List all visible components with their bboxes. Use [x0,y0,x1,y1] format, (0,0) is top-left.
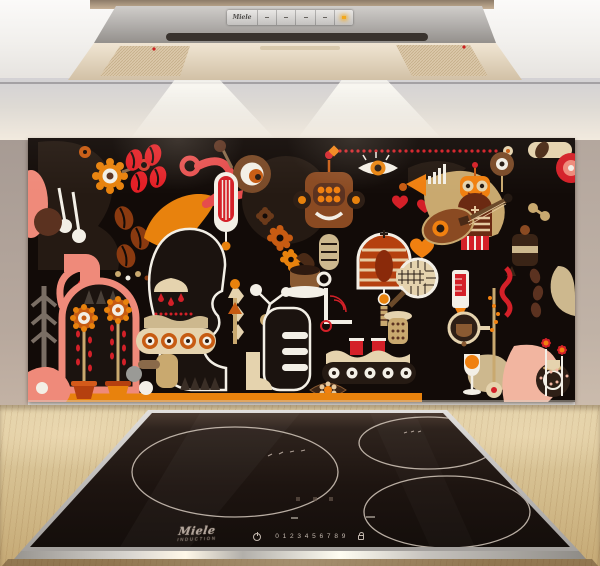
power-level-6[interactable]: 6 [319,533,323,541]
cooktop-glass [30,413,570,547]
wall-right-of-splashback [575,140,600,412]
hood-brand-logo: Miele [227,10,257,25]
power-level-4[interactable]: 4 [305,533,309,541]
hood-power-button[interactable] [257,10,276,25]
upper-wall [0,78,600,142]
power-level-2[interactable]: 2 [290,533,294,541]
hood-fan-speed-2-button[interactable] [295,10,314,25]
power-level-9[interactable]: 9 [342,533,346,541]
hood-fan-speed-3-button[interactable] [315,10,334,25]
fan-3-icon [323,17,327,19]
wall-groove [0,82,600,84]
power-icon [265,17,269,19]
glass-splashback [28,138,575,402]
power-level-3[interactable]: 3 [297,533,301,541]
fan-1-icon [284,17,288,19]
fan-2-icon [304,17,308,19]
power-level-slider[interactable]: 0 1 2 3 4 5 6 7 8 9 [275,533,346,541]
power-level-5[interactable]: 5 [312,533,316,541]
wall-left-of-splashback [0,140,28,412]
filter-indicator-left [152,47,155,50]
cooktop-touch-controls: 0 1 2 3 4 5 6 7 8 9 [253,530,403,544]
light-indicator [342,16,346,19]
hood-handle [260,46,340,50]
power-level-0[interactable]: 0 [275,533,279,541]
power-level-8[interactable]: 8 [334,533,338,541]
hood-control-panel: Miele [227,10,353,25]
control-dash-right [366,516,375,518]
kitchen-scene: Miele [0,0,600,566]
power-icon[interactable] [253,533,261,541]
control-dash-left [291,517,298,519]
hood-fan-speed-1-button[interactable] [276,10,295,25]
cooktop-logo: Miele INDUCTION [177,525,239,542]
cooktop-front-rail [14,551,586,559]
lock-icon[interactable] [358,535,364,540]
splashback-artwork [28,138,575,402]
filter-indicator-right [462,45,465,48]
hood-slot [166,33,428,41]
power-level-1[interactable]: 1 [282,533,286,541]
power-level-7[interactable]: 7 [327,533,331,541]
hood-light-button[interactable] [334,10,353,25]
